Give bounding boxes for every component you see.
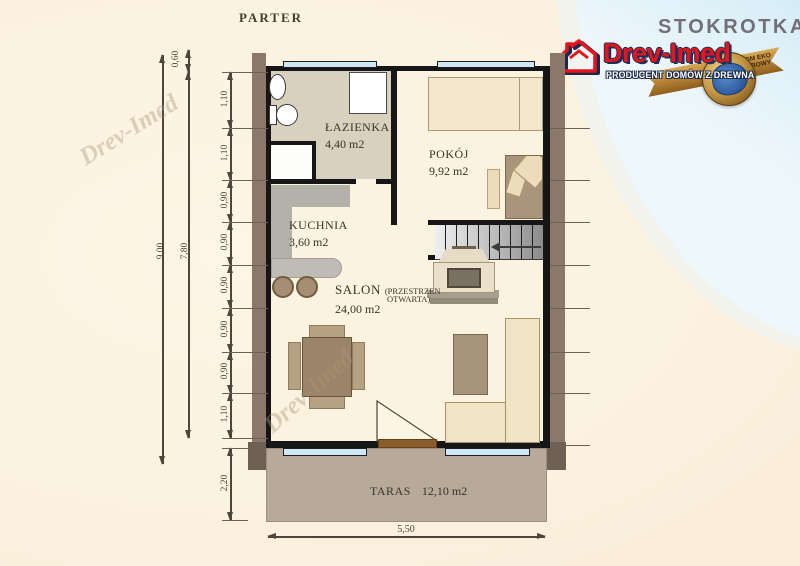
- room-area: 4,40 m2: [325, 137, 390, 152]
- dim-label: 1,10: [220, 82, 230, 116]
- dim-label: 0,90: [220, 354, 230, 388]
- wall-bathroom-bottom-b: [376, 179, 397, 184]
- desk-with-chair: [505, 155, 543, 219]
- label-bedroom: POKÓJ 9,92 m2: [429, 147, 469, 179]
- door-swing: [376, 400, 439, 443]
- dim-label: 5,50: [386, 524, 426, 535]
- door-threshold: [378, 439, 437, 448]
- dim-label: 0,90: [220, 268, 230, 302]
- dim-tick: [222, 180, 268, 181]
- wall-bathroom-right: [391, 71, 397, 225]
- plan-area: ŁAZIENKA 4,40 m2 POKÓJ 9,92 m2 KUCHNIA 3…: [0, 0, 800, 566]
- dim-label: 0,90: [220, 225, 230, 259]
- dim-tick: [222, 128, 268, 129]
- room-note: OTWARTA): [387, 294, 430, 304]
- dim-tick: [222, 438, 268, 439]
- dim-chain-seg: [230, 180, 232, 222]
- washbasin: [269, 74, 286, 100]
- dim-chain-seg: [230, 72, 232, 128]
- dim-tick: [550, 180, 590, 181]
- dim-chain-seg: [230, 222, 232, 265]
- stairs-arrowhead: [491, 242, 500, 252]
- dim-chain-seg: [230, 128, 232, 180]
- dim-tick: [550, 393, 590, 394]
- shower-wall-top: [271, 141, 316, 145]
- floorplan-page: { "title": "PARTER", "branding": { "proj…: [0, 0, 800, 566]
- dim-label: 0,90: [220, 183, 230, 217]
- label-bathroom: ŁAZIENKA 4,40 m2: [325, 120, 390, 152]
- window-top-right: [437, 61, 535, 68]
- shower-cabin: [271, 145, 312, 179]
- room-area: 12,10 m2: [422, 484, 467, 498]
- dim-chain-seg: [230, 393, 232, 438]
- watermark: Drev-Imed: [75, 89, 184, 172]
- fireplace-chimney: [438, 249, 490, 263]
- window-top-left: [283, 61, 377, 68]
- toilet-bowl: [276, 104, 298, 126]
- dim-label: 1,10: [220, 136, 230, 170]
- right-wall-band: [550, 53, 565, 442]
- dim-tick: [222, 265, 268, 266]
- room-name: KUCHNIA: [289, 218, 348, 233]
- dim-tick: [222, 448, 248, 449]
- room-name: ŁAZIENKA: [325, 120, 390, 135]
- terrace-post-left: [248, 442, 266, 470]
- dim-label: 0,90: [220, 312, 230, 346]
- label-kitchen: KUCHNIA 3,60 m2: [289, 218, 348, 250]
- kitchen-counter-top: [271, 185, 350, 207]
- dim-label: 7,80: [180, 234, 190, 268]
- dim-tick: [550, 222, 590, 223]
- dim-label: 0,60: [171, 42, 181, 76]
- shower-wall-right: [312, 145, 316, 183]
- dim-tick: [222, 72, 268, 73]
- bedroom-rug: [487, 169, 500, 209]
- room-name: POKÓJ: [429, 147, 469, 162]
- wall-bathroom-bottom-a: [271, 179, 356, 184]
- left-wall-band: [252, 53, 266, 442]
- dim-tick: [222, 393, 268, 394]
- washing-machine: [349, 72, 387, 114]
- dim-tick: [550, 308, 590, 309]
- dim-line-bottom-width: [268, 536, 545, 538]
- dim-chain-seg: [230, 308, 232, 352]
- dim-label: 9,00: [156, 234, 166, 268]
- dim-line-top-offset: [188, 50, 190, 72]
- sofa-bottom: [445, 402, 506, 443]
- room-name: TARAS: [370, 484, 411, 498]
- dim-chain-seg: [230, 352, 232, 393]
- sofa-right: [505, 318, 540, 443]
- dim-label: 1,10: [220, 397, 230, 431]
- room-name: SALON: [335, 282, 381, 297]
- wall-right: [543, 66, 550, 448]
- armchair: [453, 334, 488, 395]
- bed-headboard-line: [519, 78, 520, 130]
- window-bottom-right: [445, 448, 530, 456]
- dim-tick: [550, 265, 590, 266]
- room-area: 24,00 m2: [335, 302, 485, 317]
- dim-tick: [222, 222, 268, 223]
- bar-stool: [272, 276, 294, 298]
- label-livingroom: SALON (PRZESTRZEN OTWARTA) 24,00 m2: [335, 281, 485, 317]
- dim-label: 2,20: [220, 466, 230, 500]
- stairs-direction-arrow: [499, 246, 541, 248]
- room-area: 9,92 m2: [429, 164, 469, 179]
- dim-tick: [222, 352, 268, 353]
- dim-tick: [222, 520, 248, 521]
- dim-line-terrace-depth: [230, 448, 232, 520]
- dim-tick: [222, 308, 268, 309]
- bar-stool: [296, 276, 318, 298]
- room-area: 3,60 m2: [289, 235, 348, 250]
- dim-chain-seg: [230, 265, 232, 308]
- label-terrace: TARAS 12,10 m2: [370, 482, 467, 500]
- kitchen-bar-counter: [271, 258, 342, 278]
- dim-tick: [550, 128, 590, 129]
- dim-tick: [550, 352, 590, 353]
- dim-tick: [550, 445, 590, 446]
- window-bottom-left: [283, 448, 367, 456]
- bed: [428, 77, 543, 131]
